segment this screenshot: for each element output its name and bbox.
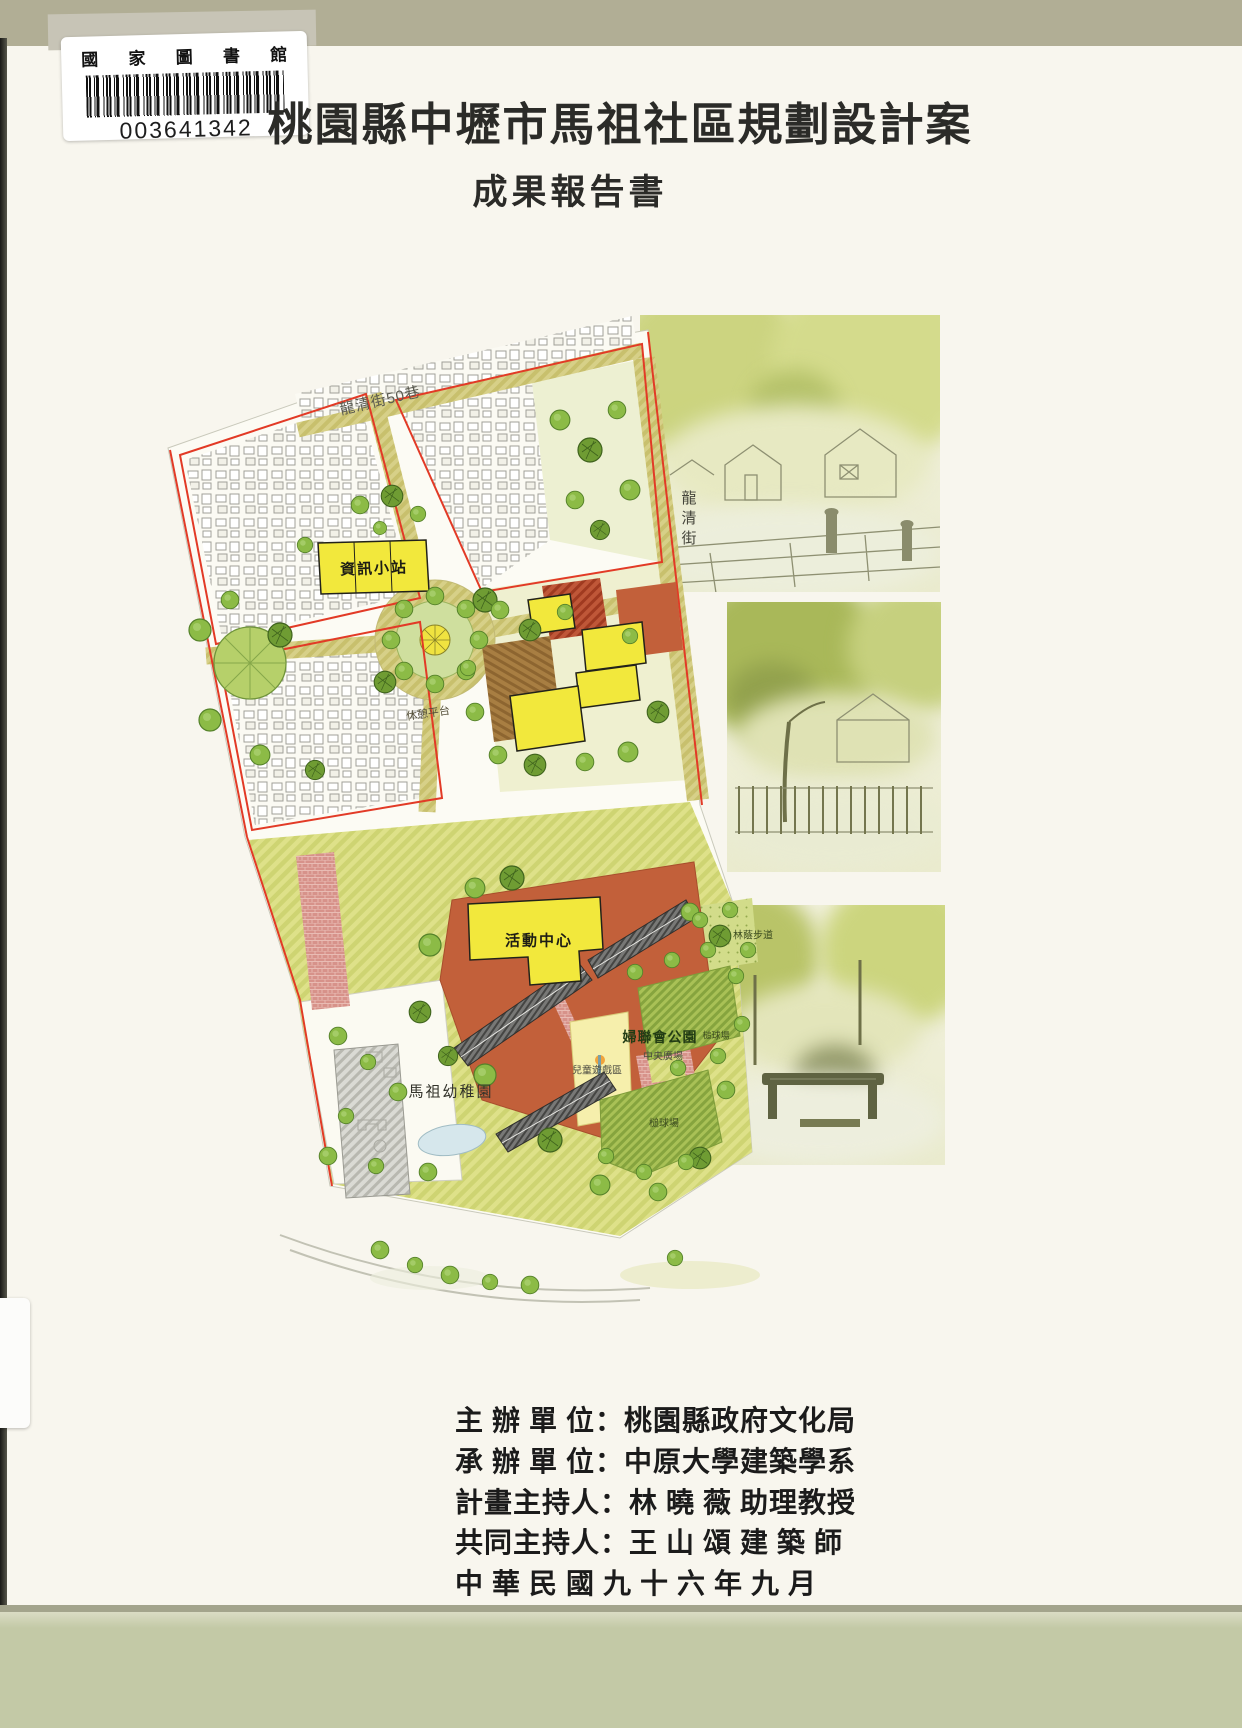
- credit-line-executor: 承 辦 單 位：中原大學建築學系: [455, 1443, 856, 1484]
- cover-bottom-band: [0, 1612, 1242, 1728]
- bench: [800, 1119, 860, 1127]
- map-label-gateball-court-lower: 槌球場: [649, 1115, 679, 1130]
- credit-line-principal-investigator: 計畫主持人：林 曉 薇 助理教授: [455, 1484, 856, 1525]
- report-subtitle: 成果報告書: [70, 164, 1070, 215]
- report-cover-scan: 國 家 圖 書 館 003641342 桃園縣中壢市馬祖社區規劃設計案 成果報告…: [0, 0, 1242, 1728]
- library-name: 國 家 圖 書 館: [61, 40, 308, 71]
- pergola: [762, 1073, 884, 1119]
- credit-line-co-investigator: 共同主持人：王 山 頌 建 築 師: [455, 1524, 856, 1565]
- spine-sticker: [0, 1298, 30, 1428]
- report-title: 桃園縣中壢市馬祖社區規劃設計案: [130, 88, 1110, 153]
- map-label-info-station: 資訊小站: [340, 556, 409, 579]
- map-label-children-play-area: 兒童遊戲區: [572, 1062, 622, 1077]
- street-label-longqing: 龍清街: [678, 490, 699, 550]
- map-label-central-plaza: 中央廣場: [643, 1048, 683, 1063]
- credit-line-organizer: 主 辦 單 位：桃園縣政府文化局: [455, 1402, 856, 1443]
- map-label-gateball-court-upper: 槌球場: [702, 1029, 729, 1042]
- site-plan-illustration: [130, 300, 780, 1310]
- credit-line-date: 中 華 民 國 九 十 六 年 九 月: [455, 1565, 856, 1606]
- map-label-mazu-kindergarten: 馬祖幼稚園: [408, 1081, 493, 1102]
- map-label-womens-league-park: 婦聯會公園: [623, 1027, 698, 1047]
- map-label-activity-center: 活動中心: [505, 930, 573, 951]
- map-label-shaded-walkway: 林蔭步道: [733, 927, 773, 942]
- credits-block: 主 辦 單 位：桃園縣政府文化局 承 辦 單 位：中原大學建築學系 計畫主持人：…: [455, 1402, 856, 1606]
